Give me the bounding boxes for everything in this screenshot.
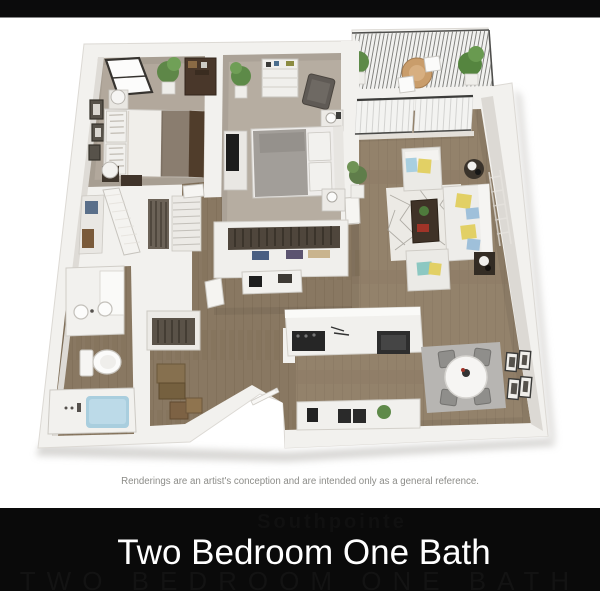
svg-text:Southpointe: Southpointe — [257, 511, 407, 533]
svg-text:TWO BEDROOM ONE BATH: TWO BEDROOM ONE BATH — [20, 566, 580, 591]
svg-text:Renderings are an artist's con: Renderings are an artist's conception an… — [121, 476, 479, 487]
